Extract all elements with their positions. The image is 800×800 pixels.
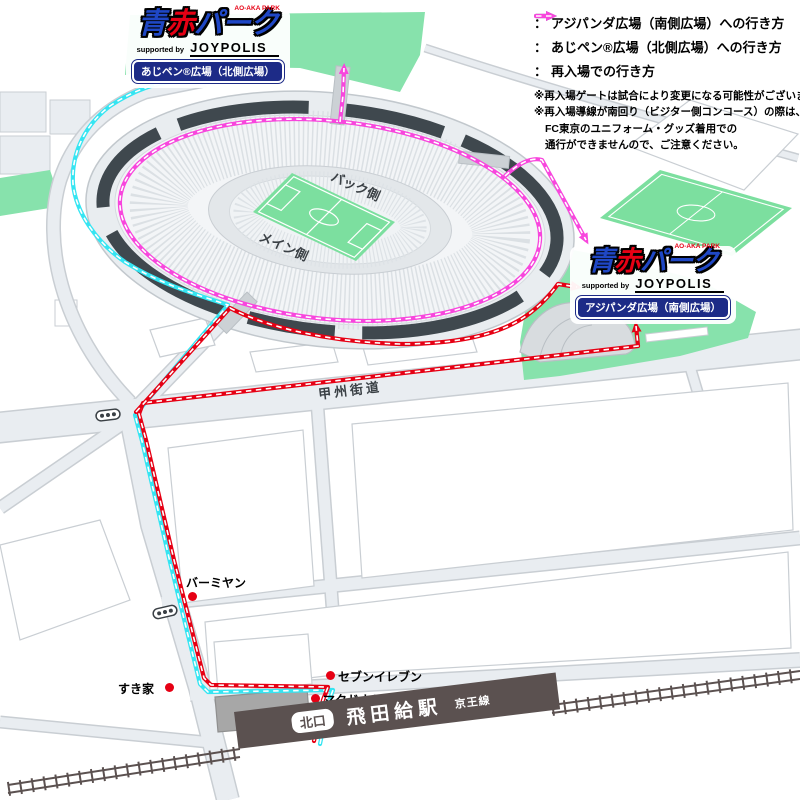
joypolis-logo: JOYPOLIS [190, 40, 279, 57]
access-map: ： アジパンダ広場（南側広場）への行き方 ： あじペン®広場（北側広場）への行き… [0, 0, 800, 800]
poi-seven-eleven-dot [326, 671, 335, 680]
joypolis-logo: JOYPOLIS [635, 276, 724, 293]
legend-label: 再入場での行き方 [551, 61, 655, 80]
legend-note-2: ※再入場導線が南回り（ビジター側コンコース）の際は、 [534, 104, 796, 120]
aoaka-park-logo: 青赤パーク AO-AKA PARK [138, 10, 278, 39]
aoaka-park-romaji: AO-AKA PARK [674, 244, 720, 251]
legend-label: あじペン®広場（北側広場）への行き方 [551, 37, 782, 56]
legend-note-2b: FC東京のユニフォーム・グッズ着用での [534, 121, 796, 137]
poi-seven-eleven-label: セブンイレブン [338, 668, 422, 685]
poi-sukiya-label: すき家 [118, 680, 154, 697]
legend-item-north-plaza: ： あじペン®広場（北側広場）への行き方 [534, 34, 796, 58]
north-exit-badge: 北口 [291, 708, 335, 734]
legend-item-reentry: ： 再入場での行き方 [534, 58, 796, 82]
north-plaza-logo: 青赤パーク AO-AKA PARK supported by JOYPOLIS … [126, 8, 290, 88]
aoaka-park-romaji: AO-AKA PARK [234, 6, 280, 13]
poi-sukiya-dot [165, 683, 174, 692]
poi-bamiyan-label: バーミヤン [186, 574, 246, 591]
south-plaza-label: アジパンダ広場（南側広場） [576, 296, 730, 319]
station-line-name: 京王線 [454, 691, 492, 711]
traffic-signal-1 [95, 409, 120, 422]
sports-courts [0, 92, 90, 326]
supported-by-text: supported by [137, 45, 185, 54]
south-plaza-logo: 青赤パーク AO-AKA PARK supported by JOYPOLIS … [570, 246, 736, 324]
legend-label: アジパンダ広場（南側広場）への行き方 [551, 13, 784, 32]
aoaka-park-logo: 青赤パーク AO-AKA PARK [588, 248, 718, 275]
legend: ： アジパンダ広場（南側広場）への行き方 ： あじペン®広場（北側広場）への行き… [534, 10, 796, 153]
poi-bamiyan-dot [188, 592, 197, 601]
supported-by-text: supported by [582, 281, 630, 290]
legend-note-2c: 通行ができませんので、ご注意ください。 [534, 137, 796, 153]
legend-note-1: ※再入場ゲートは試合により変更になる可能性がございます。 [534, 88, 796, 104]
north-plaza-label: あじペン®広場（北側広場） [132, 60, 284, 83]
magenta-route-sample-icon [534, 10, 564, 22]
station-name: 飛田給駅 [345, 692, 444, 731]
legend-item-south-plaza: ： アジパンダ広場（南側広場）への行き方 [534, 10, 796, 34]
